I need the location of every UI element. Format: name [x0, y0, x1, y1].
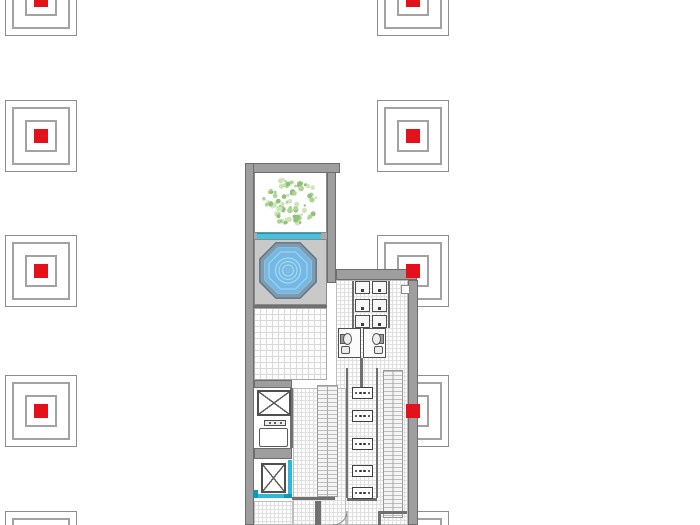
motif-red-center [406, 404, 420, 418]
motif-red-center [406, 129, 420, 143]
motif-red-center [406, 264, 420, 278]
motif-red-center-layer [0, 0, 700, 525]
motif-red-center [34, 129, 48, 143]
motif-red-center [34, 264, 48, 278]
motif-red-center [34, 0, 48, 7]
floor-plan-canvas [0, 0, 700, 525]
motif-red-center [34, 404, 48, 418]
motif-red-center [406, 0, 420, 7]
